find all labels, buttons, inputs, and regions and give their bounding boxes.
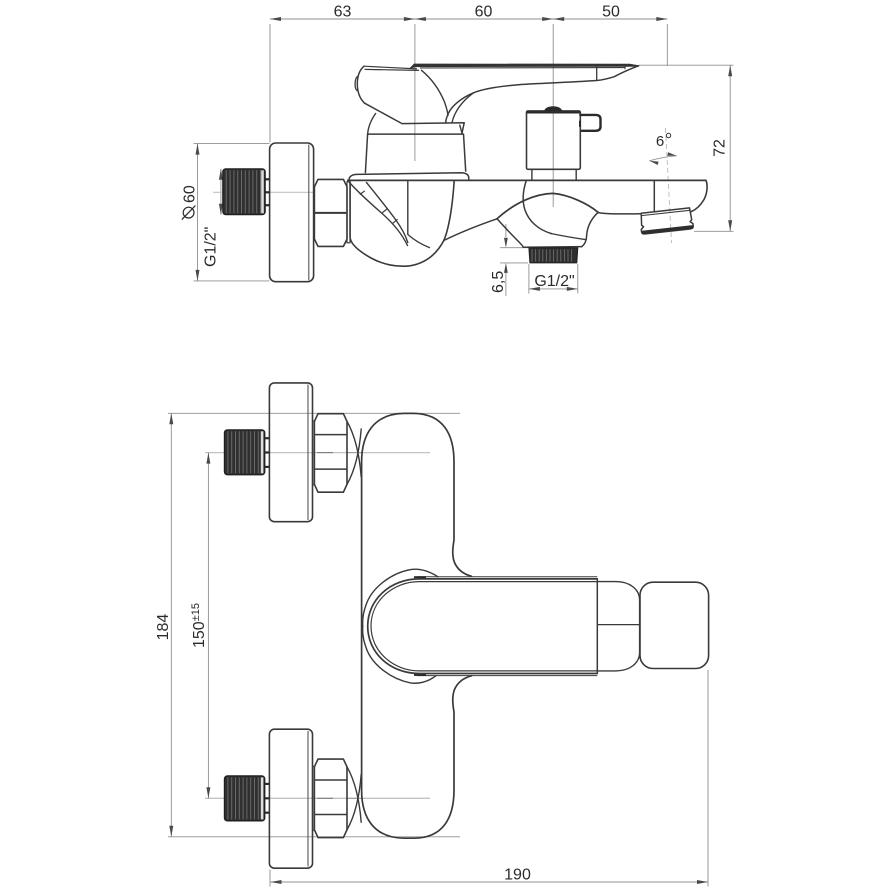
svg-text:60: 60 [475,4,493,21]
svg-text:G1/2": G1/2" [534,273,574,290]
svg-text:50: 50 [602,4,620,21]
svg-text:60: 60 [182,185,199,203]
svg-text:6,5: 6,5 [490,271,507,293]
svg-text:72: 72 [712,139,729,157]
svg-text:63: 63 [334,4,352,21]
svg-text:G1/2": G1/2" [203,227,220,267]
svg-text:184: 184 [155,614,172,641]
svg-text:190: 190 [504,867,531,884]
svg-text:6: 6 [656,133,664,150]
